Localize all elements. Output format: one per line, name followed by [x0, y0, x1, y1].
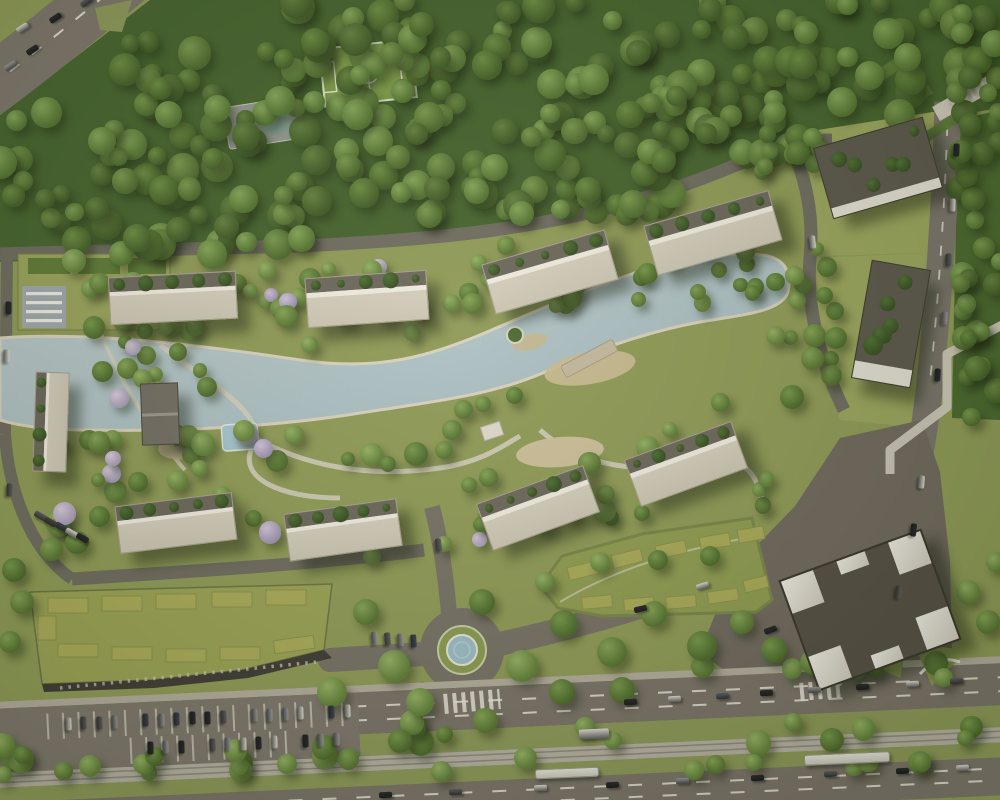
terrain-circle [447, 635, 477, 665]
aerial-masterplan-scene [0, 0, 1000, 800]
terrain-rect [78, 258, 120, 274]
terrain-rect [220, 647, 260, 660]
terrain-path [330, 654, 424, 660]
terrain-rect [26, 301, 62, 304]
terrain-rect [102, 596, 142, 611]
terrain-rect [156, 594, 196, 609]
terrain-rect [38, 616, 56, 640]
terrain-rect [624, 597, 655, 611]
terrain-rect [221, 423, 259, 451]
terrain-rect [26, 310, 62, 313]
terrain-rect [166, 649, 206, 662]
terrain-rect [212, 592, 252, 607]
ground-terrain-roads-water [0, 0, 1000, 800]
terrain-rect [26, 292, 62, 295]
terrain-rect [582, 595, 613, 610]
terrain-rect [48, 598, 88, 613]
terrain-rect [26, 319, 62, 322]
terrain-rect [128, 258, 166, 274]
terrain-rect [28, 258, 70, 274]
terrain-layer [0, 0, 1000, 800]
terrain-rect [260, 103, 294, 135]
terrain-rect [112, 647, 152, 660]
terrain-circle [507, 327, 523, 343]
terrain-rect [666, 595, 697, 610]
terrain-rect [58, 644, 98, 657]
terrain-rect [266, 590, 306, 605]
